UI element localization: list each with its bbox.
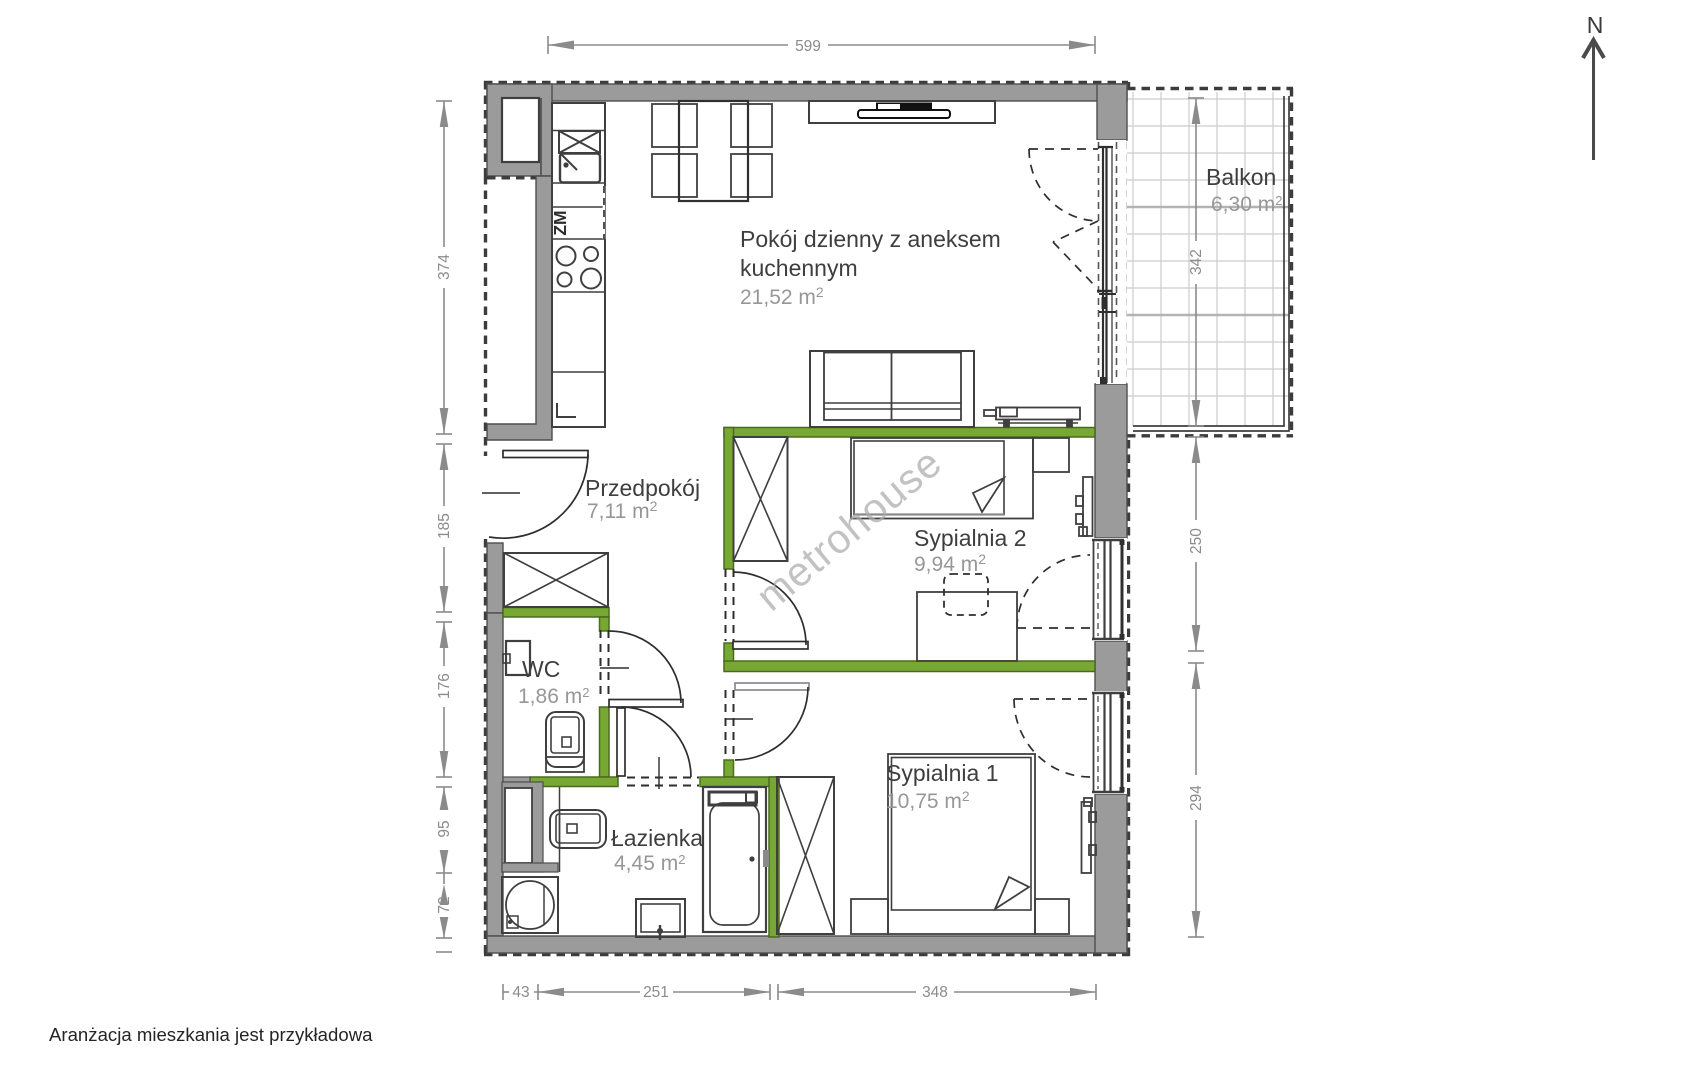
svg-text:348: 348 [922, 984, 948, 1001]
svg-text:374: 374 [436, 254, 453, 280]
svg-text:Łazienka: Łazienka [611, 825, 703, 851]
svg-text:Przedpokój: Przedpokój [585, 475, 700, 501]
svg-text:294: 294 [1188, 785, 1205, 811]
svg-text:95: 95 [436, 820, 453, 837]
svg-text:176: 176 [436, 673, 453, 699]
svg-text:7,11 m2: 7,11 m2 [587, 498, 658, 523]
svg-text:4,45 m2: 4,45 m2 [614, 852, 685, 875]
svg-text:1,86 m2: 1,86 m2 [518, 685, 589, 708]
svg-text:599: 599 [795, 38, 821, 55]
svg-text:21,52 m2: 21,52 m2 [740, 284, 824, 309]
svg-text:WC: WC [522, 656, 560, 682]
svg-text:251: 251 [643, 984, 669, 1001]
svg-text:Aranżacja mieszkania jest przy: Aranżacja mieszkania jest przykładowa [49, 1024, 373, 1045]
svg-text:72: 72 [436, 896, 453, 913]
svg-text:Pokój dzienny z aneksem: Pokój dzienny z aneksem [740, 226, 1001, 252]
svg-text:N: N [1587, 12, 1604, 38]
svg-text:185: 185 [436, 513, 453, 539]
svg-text:250: 250 [1188, 528, 1205, 554]
svg-text:ZM: ZM [550, 210, 570, 235]
svg-text:Sypialnia 2: Sypialnia 2 [914, 525, 1027, 551]
svg-text:10,75 m2: 10,75 m2 [886, 788, 970, 813]
svg-text:43: 43 [512, 984, 529, 1001]
svg-text:Sypialnia 1: Sypialnia 1 [886, 760, 999, 786]
svg-text:9,94 m2: 9,94 m2 [914, 551, 986, 576]
svg-text:6,30 m2: 6,30 m2 [1211, 193, 1282, 216]
svg-text:kuchennym: kuchennym [740, 255, 858, 281]
svg-text:342: 342 [1188, 249, 1205, 275]
svg-text:Balkon: Balkon [1206, 164, 1276, 190]
